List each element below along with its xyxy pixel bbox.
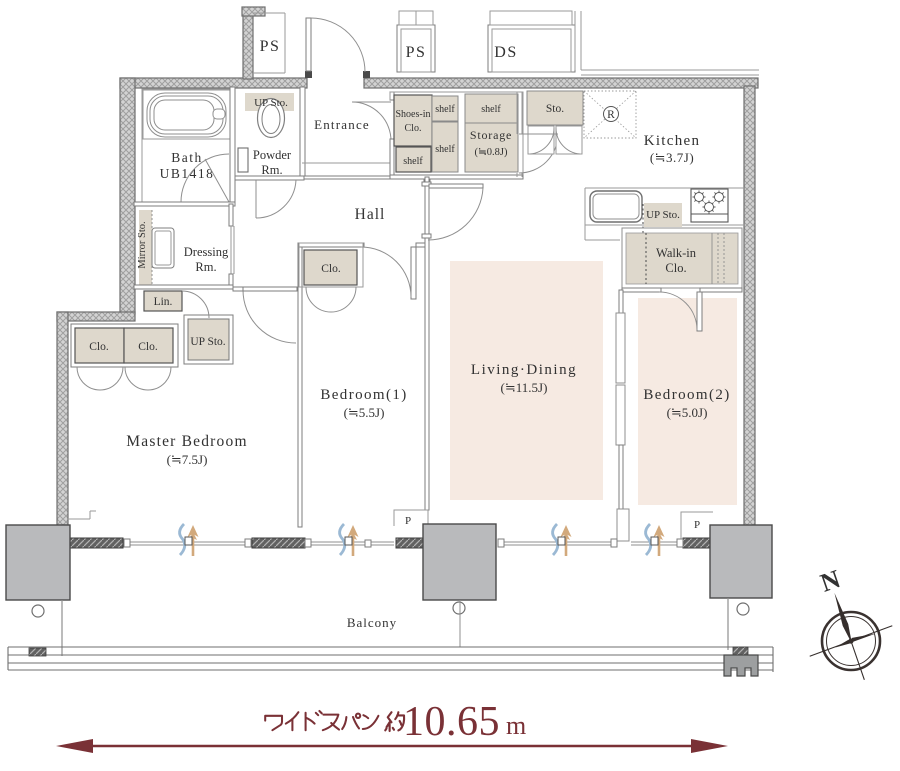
svg-text:N: N: [817, 564, 844, 598]
svg-text:Rm.: Rm.: [195, 260, 216, 274]
svg-text:Hall: Hall: [355, 206, 386, 223]
svg-text:Mirror Sto.: Mirror Sto.: [137, 221, 148, 268]
svg-text:R: R: [607, 109, 615, 121]
svg-text:UP Sto.: UP Sto.: [190, 336, 225, 348]
svg-text:Kitchen: Kitchen: [644, 133, 701, 149]
svg-text:Dressing: Dressing: [184, 245, 229, 259]
svg-text:PS: PS: [260, 38, 281, 55]
svg-text:Rm.: Rm.: [261, 163, 282, 177]
svg-text:Clo.: Clo.: [138, 341, 158, 353]
svg-text:Clo.: Clo.: [665, 261, 686, 275]
svg-text:Entrance: Entrance: [314, 117, 370, 132]
svg-text:shelf: shelf: [481, 104, 501, 115]
svg-text:(≒5.0J): (≒5.0J): [667, 405, 708, 420]
svg-text:Bedroom(2): Bedroom(2): [643, 387, 730, 403]
svg-text:(≒3.7J): (≒3.7J): [650, 150, 694, 165]
svg-text:P: P: [694, 519, 700, 531]
svg-text:Living·Dining: Living·Dining: [471, 362, 577, 378]
svg-text:(≒11.5J): (≒11.5J): [501, 380, 548, 395]
svg-text:Walk-in: Walk-in: [656, 246, 697, 260]
svg-text:(≒7.5J): (≒7.5J): [167, 452, 208, 467]
svg-text:PS: PS: [406, 44, 427, 61]
svg-text:Bedroom(1): Bedroom(1): [320, 387, 407, 403]
svg-text:10.65: 10.65: [403, 699, 500, 745]
svg-text:Master Bedroom: Master Bedroom: [126, 433, 247, 450]
svg-text:Sto.: Sto.: [546, 103, 564, 115]
svg-text:P: P: [405, 515, 411, 527]
svg-text:m: m: [506, 711, 526, 740]
svg-text:Clo.: Clo.: [321, 263, 341, 275]
svg-text:Storage: Storage: [470, 128, 512, 142]
svg-text:DS: DS: [494, 44, 517, 61]
svg-text:shelf: shelf: [435, 104, 455, 115]
svg-text:shelf: shelf: [403, 156, 423, 167]
svg-text:Bath: Bath: [171, 150, 203, 165]
svg-text:Clo.: Clo.: [405, 123, 422, 134]
svg-text:Powder: Powder: [253, 148, 292, 162]
svg-text:UP Sto.: UP Sto.: [646, 209, 680, 221]
svg-text:UP Sto.: UP Sto.: [254, 97, 288, 109]
svg-text:Lin.: Lin.: [154, 296, 173, 308]
svg-text:(≒5.5J): (≒5.5J): [344, 405, 385, 420]
svg-text:shelf: shelf: [435, 144, 455, 155]
svg-text:Clo.: Clo.: [89, 341, 109, 353]
svg-text:(≒0.8J): (≒0.8J): [474, 147, 508, 158]
svg-text:Balcony: Balcony: [347, 615, 397, 630]
svg-text:Shoes-in: Shoes-in: [396, 109, 431, 120]
